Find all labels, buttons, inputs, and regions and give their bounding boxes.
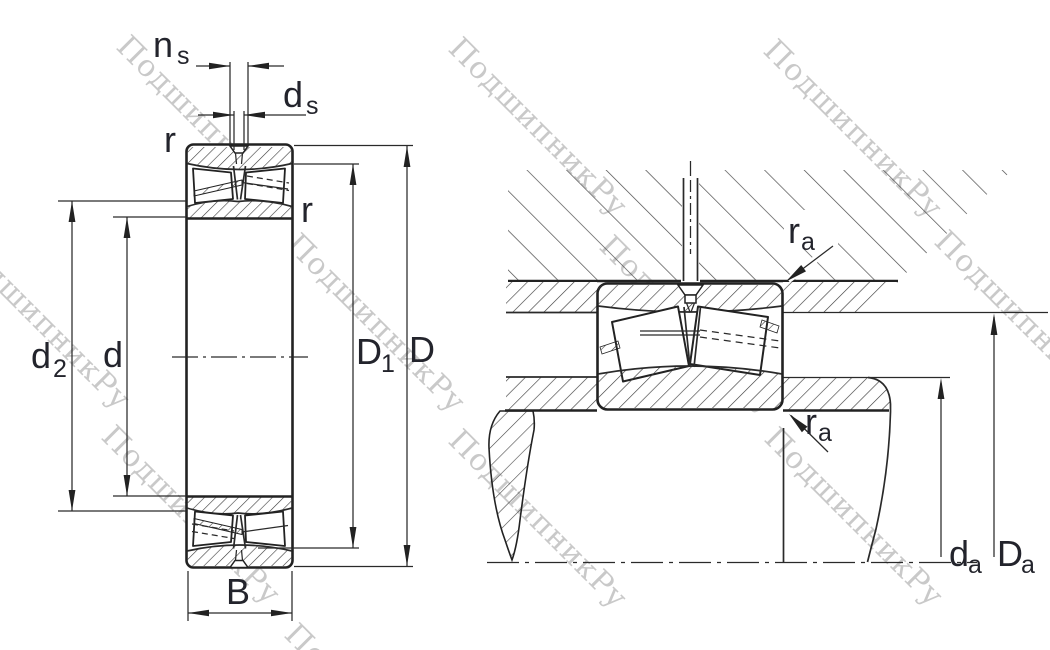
label-ns-sub: s [177,42,190,70]
watermark: ПодшипникРу [927,224,1050,417]
outer-ring-top [187,146,292,170]
label-D: D [409,329,435,370]
label-Da: D [997,533,1023,574]
label-ra-shaft: r [805,401,817,442]
bearing-mounted [598,284,783,410]
label-da-sub: a [968,551,982,579]
label-ns: n [153,24,173,65]
label-D1: D [356,331,382,372]
label-r-top: r [164,119,176,160]
bearing-dimension-drawing: ПодшипникРу ПодшипникРу ПодшипникРу Подш… [0,0,1050,650]
label-d: d [103,334,123,375]
label-Da-sub: a [1021,551,1035,579]
dimension-Da: D a [991,314,1035,580]
housing-seat-left [506,282,597,313]
label-D1-sub: 1 [381,350,395,378]
label-ds: d [283,74,303,115]
label-ra-housing-sub: a [801,228,815,256]
dimension-da: d a [938,378,982,579]
right-view-mounting-drawing: r a r a d a D a [487,161,1048,579]
watermark: ПодшипникРу [757,421,950,614]
label-da: d [949,533,969,574]
watermark: ПодшипникРу [277,617,470,650]
label-d2: d [31,335,51,376]
watermark: ПодшипникРу [0,224,137,417]
label-ra-housing: r [788,210,800,251]
oil-duct [682,161,699,281]
shaft-abutment-right [783,378,890,411]
watermark: ПодшипникРу [441,423,634,616]
housing-seat-right [783,282,897,313]
watermark-layer: ПодшипникРу ПодшипникРу ПодшипникРу Подш… [0,29,1050,650]
label-d2-sub: 2 [53,355,67,383]
housing-section [508,170,1012,281]
label-ra-shaft-sub: a [818,419,832,447]
inner-ring-top [187,201,292,219]
label-ds-sub: s [306,92,319,120]
label-B: B [226,571,250,612]
inner-ring-bottom [187,497,292,514]
watermark: ПодшипникРу [279,227,472,420]
label-r-inner: r [301,189,313,230]
shaft-abutment-left [506,377,597,411]
